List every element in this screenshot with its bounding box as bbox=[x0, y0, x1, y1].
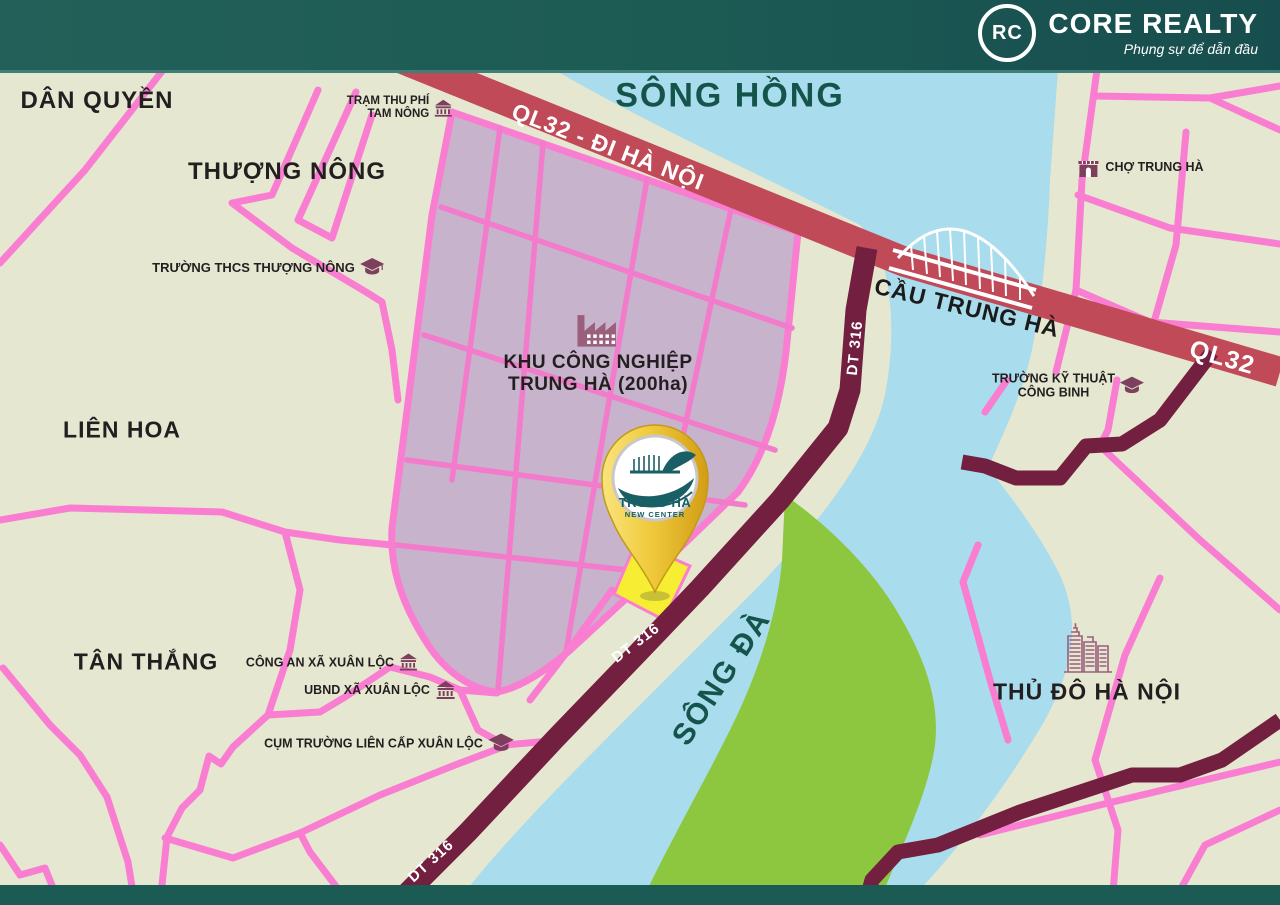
poi-truong-thcs: TRƯỜNG THCS THƯỢNG NÔNG bbox=[152, 258, 384, 276]
poi-cho-trung-ha: CHỢ TRUNG HÀ bbox=[1076, 157, 1203, 177]
map-canvas: TRUNG HÀ NEW CENTER bbox=[0, 0, 1280, 905]
factory-icon bbox=[571, 308, 625, 350]
poi-truong-ky-thuat-line1: TRƯỜNG KỸ THUẬT bbox=[992, 372, 1115, 386]
poi-cho-trung-ha-text: CHỢ TRUNG HÀ bbox=[1105, 160, 1203, 174]
area-label-thu-do-ha-noi: THỦ ĐÔ HÀ NỘI bbox=[993, 679, 1181, 706]
brand: RC CORE REALTY Phụng sự để dẫn đầu bbox=[978, 4, 1258, 62]
logo-monogram: RC bbox=[992, 22, 1023, 45]
area-label-thuong-nong: THƯỢNG NÔNG bbox=[188, 158, 386, 186]
graduation-cap-icon bbox=[1120, 377, 1144, 395]
footer-bar bbox=[0, 885, 1280, 905]
poi-truong-thcs-text: TRƯỜNG THCS THƯỢNG NÔNG bbox=[152, 260, 355, 275]
area-label-dan-quyen: DÂN QUYỀN bbox=[20, 87, 173, 115]
core-realty-logo-icon: RC bbox=[978, 4, 1036, 62]
poi-tram-thu-phi-line2: TAM NÔNG bbox=[367, 108, 429, 121]
poi-cum-truong: CỤM TRƯỜNG LIÊN CẤP XUÂN LỘC bbox=[264, 734, 514, 753]
city-buildings-icon bbox=[1060, 622, 1116, 674]
government-building-icon bbox=[434, 100, 453, 117]
poi-cong-an: CÔNG AN XÃ XUÂN LỘC bbox=[246, 654, 418, 671]
poi-tram-thu-phi-line1: TRẠM THU PHÍ bbox=[347, 95, 429, 108]
river-label-song-hong: SÔNG HỒNG bbox=[615, 77, 845, 116]
poi-ubnd-text: UBND XÃ XUÂN LỘC bbox=[304, 683, 430, 697]
poi-cum-truong-text: CỤM TRƯỜNG LIÊN CẤP XUÂN LỘC bbox=[264, 736, 483, 750]
market-icon bbox=[1076, 157, 1100, 177]
poi-tram-thu-phi: TRẠM THU PHÍ TAM NÔNG bbox=[347, 95, 453, 121]
poi-khu-cong-nghiep-line2: TRUNG HÀ (200ha) bbox=[508, 374, 688, 396]
header-bar: RC CORE REALTY Phụng sự để dẫn đầu bbox=[0, 0, 1280, 73]
government-building-icon bbox=[435, 681, 456, 699]
graduation-cap-icon bbox=[360, 258, 384, 276]
poi-cong-an-text: CÔNG AN XÃ XUÂN LỘC bbox=[246, 655, 394, 669]
poi-truong-ky-thuat-line2: CÔNG BINH bbox=[1018, 386, 1090, 400]
brand-name: CORE REALTY bbox=[1048, 9, 1258, 40]
poi-ubnd: UBND XÃ XUÂN LỘC bbox=[304, 681, 456, 699]
government-building-icon bbox=[399, 654, 418, 671]
area-label-lien-hoa: LIÊN HOA bbox=[63, 417, 181, 444]
pin-subtitle: NEW CENTER bbox=[625, 510, 685, 519]
pin-title: TRUNG HÀ bbox=[619, 495, 692, 510]
area-label-tan-thang: TÂN THẮNG bbox=[74, 649, 218, 676]
poi-khu-cong-nghiep-line1: KHU CÔNG NGHIỆP bbox=[503, 352, 692, 374]
graduation-cap-icon bbox=[488, 734, 514, 753]
poi-truong-ky-thuat: TRƯỜNG KỸ THUẬT CÔNG BINH bbox=[992, 372, 1144, 401]
screenshot-root: TRUNG HÀ NEW CENTER DÂN QUYỀN THƯỢNG NÔN… bbox=[0, 0, 1280, 905]
brand-tagline: Phụng sự để dẫn đầu bbox=[1124, 41, 1258, 57]
poi-khu-cong-nghiep: KHU CÔNG NGHIỆP TRUNG HÀ (200ha) bbox=[503, 308, 692, 396]
